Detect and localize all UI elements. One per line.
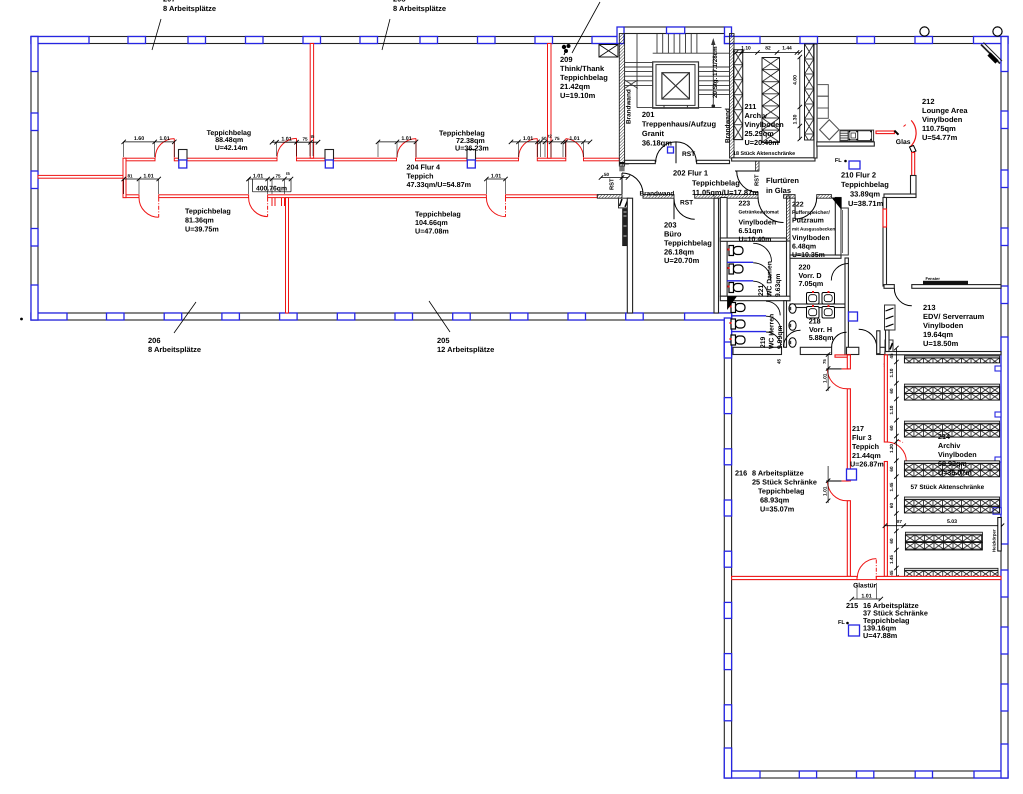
svg-text:U=47.88m: U=47.88m xyxy=(863,631,898,640)
svg-text:210 Flur 2: 210 Flur 2 xyxy=(841,171,876,180)
svg-text:215: 215 xyxy=(846,601,858,610)
svg-text:75: 75 xyxy=(302,137,308,142)
svg-text:60: 60 xyxy=(889,466,894,472)
svg-text:Teppichbelag: Teppichbelag xyxy=(560,73,608,82)
svg-text:36.18qm: 36.18qm xyxy=(642,139,672,148)
svg-text:209: 209 xyxy=(560,55,573,64)
svg-text:18 Stück Aktenschränke: 18 Stück Aktenschränke xyxy=(733,151,795,157)
svg-text:Granit: Granit xyxy=(642,129,665,138)
svg-text:U=35.07m: U=35.07m xyxy=(760,505,795,514)
svg-text:RST: RST xyxy=(682,151,695,158)
svg-text:U=18.50m: U=18.50m xyxy=(923,339,959,348)
svg-text:RST: RST xyxy=(754,174,761,186)
svg-text:U=10.40m: U=10.40m xyxy=(739,237,772,244)
svg-text:4.00: 4.00 xyxy=(793,75,799,85)
svg-text:25.29qm: 25.29qm xyxy=(745,129,775,138)
svg-text:8 Arbeitsplätze: 8 Arbeitsplätze xyxy=(393,4,446,13)
svg-text:t5: t5 xyxy=(286,171,290,176)
svg-text:U=20.40m: U=20.40m xyxy=(745,138,780,147)
svg-text:9.63qm: 9.63qm xyxy=(775,274,782,297)
svg-text:60: 60 xyxy=(889,538,894,544)
svg-text:FL: FL xyxy=(838,620,845,626)
svg-text:t2: t2 xyxy=(548,134,552,139)
svg-text:in Glas: in Glas xyxy=(766,186,791,195)
svg-text:Teppichbelag: Teppichbelag xyxy=(664,239,712,248)
svg-text:Brandwand: Brandwand xyxy=(626,89,633,124)
svg-text:68.93qm: 68.93qm xyxy=(938,459,967,468)
svg-text:9.99qm: 9.99qm xyxy=(777,326,784,349)
svg-text:Vinylboden: Vinylboden xyxy=(922,115,963,124)
svg-text:Vinylboden: Vinylboden xyxy=(923,321,964,330)
svg-text:1.10: 1.10 xyxy=(889,405,894,414)
svg-text:1.45: 1.45 xyxy=(889,482,894,491)
svg-text:213: 213 xyxy=(923,303,936,312)
svg-text:75: 75 xyxy=(554,136,560,141)
svg-text:11.05qm/U=17.87m: 11.05qm/U=17.87m xyxy=(692,188,759,197)
svg-text:Archiv: Archiv xyxy=(938,441,960,450)
svg-text:1.10: 1.10 xyxy=(741,46,751,52)
svg-text:57 Stück Aktenschränke: 57 Stück Aktenschränke xyxy=(911,484,985,491)
svg-text:33.89qm: 33.89qm xyxy=(850,190,880,199)
svg-text:8 Arbeitsplätze: 8 Arbeitsplätze xyxy=(148,345,201,354)
svg-text:Lounge Area: Lounge Area xyxy=(922,106,968,115)
svg-text:U=47.08m: U=47.08m xyxy=(415,227,449,236)
svg-text:1.01: 1.01 xyxy=(491,173,501,179)
svg-text:202 Flur 1: 202 Flur 1 xyxy=(673,169,708,178)
svg-text:Brandwand: Brandwand xyxy=(724,108,731,143)
svg-text:25 Stück Schränke: 25 Stück Schränke xyxy=(752,478,817,487)
svg-text:216: 216 xyxy=(735,469,747,478)
svg-text:87: 87 xyxy=(897,519,902,524)
svg-text:U=38.71m: U=38.71m xyxy=(848,199,884,208)
svg-text:Fenster: Fenster xyxy=(926,276,941,281)
svg-text:Pufferspeicher/: Pufferspeicher/ xyxy=(792,210,830,216)
svg-text:60: 60 xyxy=(889,388,894,394)
svg-text:1.10: 1.10 xyxy=(889,368,894,377)
svg-text:WC Damen: WC Damen xyxy=(767,261,774,297)
svg-text:8 Arbeitsplätze: 8 Arbeitsplätze xyxy=(163,4,216,13)
svg-text:1.01: 1.01 xyxy=(143,173,153,179)
svg-text:1.30: 1.30 xyxy=(793,114,799,124)
svg-text:223: 223 xyxy=(739,201,751,208)
svg-text:Vinylboden: Vinylboden xyxy=(938,450,977,459)
svg-text:1.01: 1.01 xyxy=(281,137,291,143)
svg-text:47.33qm/U=54.87m: 47.33qm/U=54.87m xyxy=(407,180,472,189)
svg-text:7.05qm: 7.05qm xyxy=(799,279,824,288)
svg-text:212: 212 xyxy=(922,97,935,106)
svg-text:6.48qm: 6.48qm xyxy=(792,244,816,251)
svg-text:21.42qm: 21.42qm xyxy=(560,82,590,91)
svg-text:1.01: 1.01 xyxy=(861,593,871,599)
svg-text:203: 203 xyxy=(664,221,677,230)
svg-text:1.45: 1.45 xyxy=(889,555,894,564)
svg-text:81.36qm: 81.36qm xyxy=(185,216,214,225)
svg-text:1.44: 1.44 xyxy=(782,46,792,52)
svg-text:219: 219 xyxy=(760,336,767,348)
svg-text:60: 60 xyxy=(889,503,894,509)
svg-text:81: 81 xyxy=(127,173,133,178)
svg-text:50: 50 xyxy=(541,136,547,141)
svg-text:mit Ausgussbecken: mit Ausgussbecken xyxy=(792,227,835,232)
svg-text:19.64qm: 19.64qm xyxy=(923,330,953,339)
svg-text:U=10.35m: U=10.35m xyxy=(792,252,825,259)
svg-text:45: 45 xyxy=(889,353,894,359)
svg-text:Teppichbelag: Teppichbelag xyxy=(758,487,805,496)
svg-text:217: 217 xyxy=(852,424,864,433)
svg-text:5.03: 5.03 xyxy=(947,519,957,525)
svg-text:Teppichbelag: Teppichbelag xyxy=(692,179,740,188)
svg-text:FL: FL xyxy=(835,158,842,164)
svg-text:88.48qm: 88.48qm xyxy=(215,137,243,144)
svg-text:12 Arbeitsplätze: 12 Arbeitsplätze xyxy=(437,345,494,354)
svg-text:1.01: 1.01 xyxy=(822,373,828,383)
svg-text:Teppich: Teppich xyxy=(852,442,879,451)
svg-text:45: 45 xyxy=(889,570,894,576)
svg-text:1.20: 1.20 xyxy=(889,444,894,453)
svg-text:1.01: 1.01 xyxy=(523,136,533,142)
svg-text:Glastür: Glastür xyxy=(853,583,877,590)
svg-text:206: 206 xyxy=(148,336,161,345)
svg-text:204 Flur 4: 204 Flur 4 xyxy=(407,163,441,172)
svg-text:1.60: 1.60 xyxy=(134,136,144,142)
svg-text:RST: RST xyxy=(609,178,616,190)
svg-text:1.01: 1.01 xyxy=(822,486,828,496)
svg-text:60: 60 xyxy=(889,425,894,431)
svg-text:208: 208 xyxy=(393,0,406,4)
svg-text:1.01: 1.01 xyxy=(159,136,169,142)
svg-text:U=35.07m: U=35.07m xyxy=(938,468,972,477)
svg-text:Vinylboden: Vinylboden xyxy=(792,234,830,242)
svg-text:EDV/ Serverraum: EDV/ Serverraum xyxy=(923,312,985,321)
svg-text:Flur 3: Flur 3 xyxy=(852,433,872,442)
svg-text:Glas: Glas xyxy=(896,139,911,146)
svg-text:Vinylboden: Vinylboden xyxy=(739,219,777,227)
svg-text:Flurtüren: Flurtüren xyxy=(766,176,799,185)
svg-text:214: 214 xyxy=(938,432,950,441)
svg-text:5.88qm: 5.88qm xyxy=(809,333,834,342)
svg-text:U=54.77m: U=54.77m xyxy=(922,133,958,142)
svg-text:Think/Thank: Think/Thank xyxy=(560,64,605,73)
svg-text:110.75qm: 110.75qm xyxy=(922,124,956,133)
svg-text:211: 211 xyxy=(745,102,757,111)
svg-text:t5: t5 xyxy=(311,134,315,139)
svg-text:Brandwand: Brandwand xyxy=(640,190,675,197)
svg-text:68.93qm: 68.93qm xyxy=(760,496,790,505)
svg-text:Teppichbelag: Teppichbelag xyxy=(207,129,252,137)
svg-text:20 Stg. 17.1/28cm: 20 Stg. 17.1/28cm xyxy=(712,46,719,98)
svg-text:RST: RST xyxy=(680,200,693,207)
svg-text:1.01: 1.01 xyxy=(569,136,579,142)
svg-text:Putzraum: Putzraum xyxy=(792,218,824,225)
svg-text:Büro: Büro xyxy=(664,230,682,239)
svg-text:Vinylboden: Vinylboden xyxy=(745,120,784,129)
svg-text:8 Arbeitsplätze: 8 Arbeitsplätze xyxy=(752,469,804,478)
svg-text:75: 75 xyxy=(822,359,827,364)
svg-text:Archiv: Archiv xyxy=(745,111,769,120)
svg-text:Getränkeautomat: Getränkeautomat xyxy=(739,210,780,216)
svg-text:6.51qm: 6.51qm xyxy=(739,228,763,235)
svg-text:Teppichbelag: Teppichbelag xyxy=(185,207,231,216)
svg-text:U=39.75m: U=39.75m xyxy=(185,225,219,234)
svg-text:U=42.14m: U=42.14m xyxy=(215,145,248,152)
svg-text:221: 221 xyxy=(758,284,765,296)
svg-text:Treppenhaus/Aufzug: Treppenhaus/Aufzug xyxy=(642,120,717,129)
svg-text:82: 82 xyxy=(765,46,771,52)
svg-text:U=26.87m: U=26.87m xyxy=(850,460,884,469)
svg-text:Heizkörper: Heizkörper xyxy=(992,529,997,552)
svg-text:1.01: 1.01 xyxy=(253,173,263,179)
svg-text:50: 50 xyxy=(604,172,610,177)
svg-text:207: 207 xyxy=(163,0,176,4)
svg-text:201: 201 xyxy=(642,110,655,119)
svg-text:WC Herren: WC Herren xyxy=(769,314,776,349)
svg-text:45: 45 xyxy=(777,358,782,364)
svg-text:1.01: 1.01 xyxy=(401,136,411,142)
svg-text:205: 205 xyxy=(437,336,450,345)
svg-text:222: 222 xyxy=(792,202,804,209)
svg-text:U=19.10m: U=19.10m xyxy=(560,91,596,100)
svg-text:U=20.70m: U=20.70m xyxy=(664,256,700,265)
svg-text:Teppichbelag: Teppichbelag xyxy=(841,180,889,189)
svg-text:U=36.23m: U=36.23m xyxy=(455,144,489,153)
svg-text:75: 75 xyxy=(275,173,281,178)
